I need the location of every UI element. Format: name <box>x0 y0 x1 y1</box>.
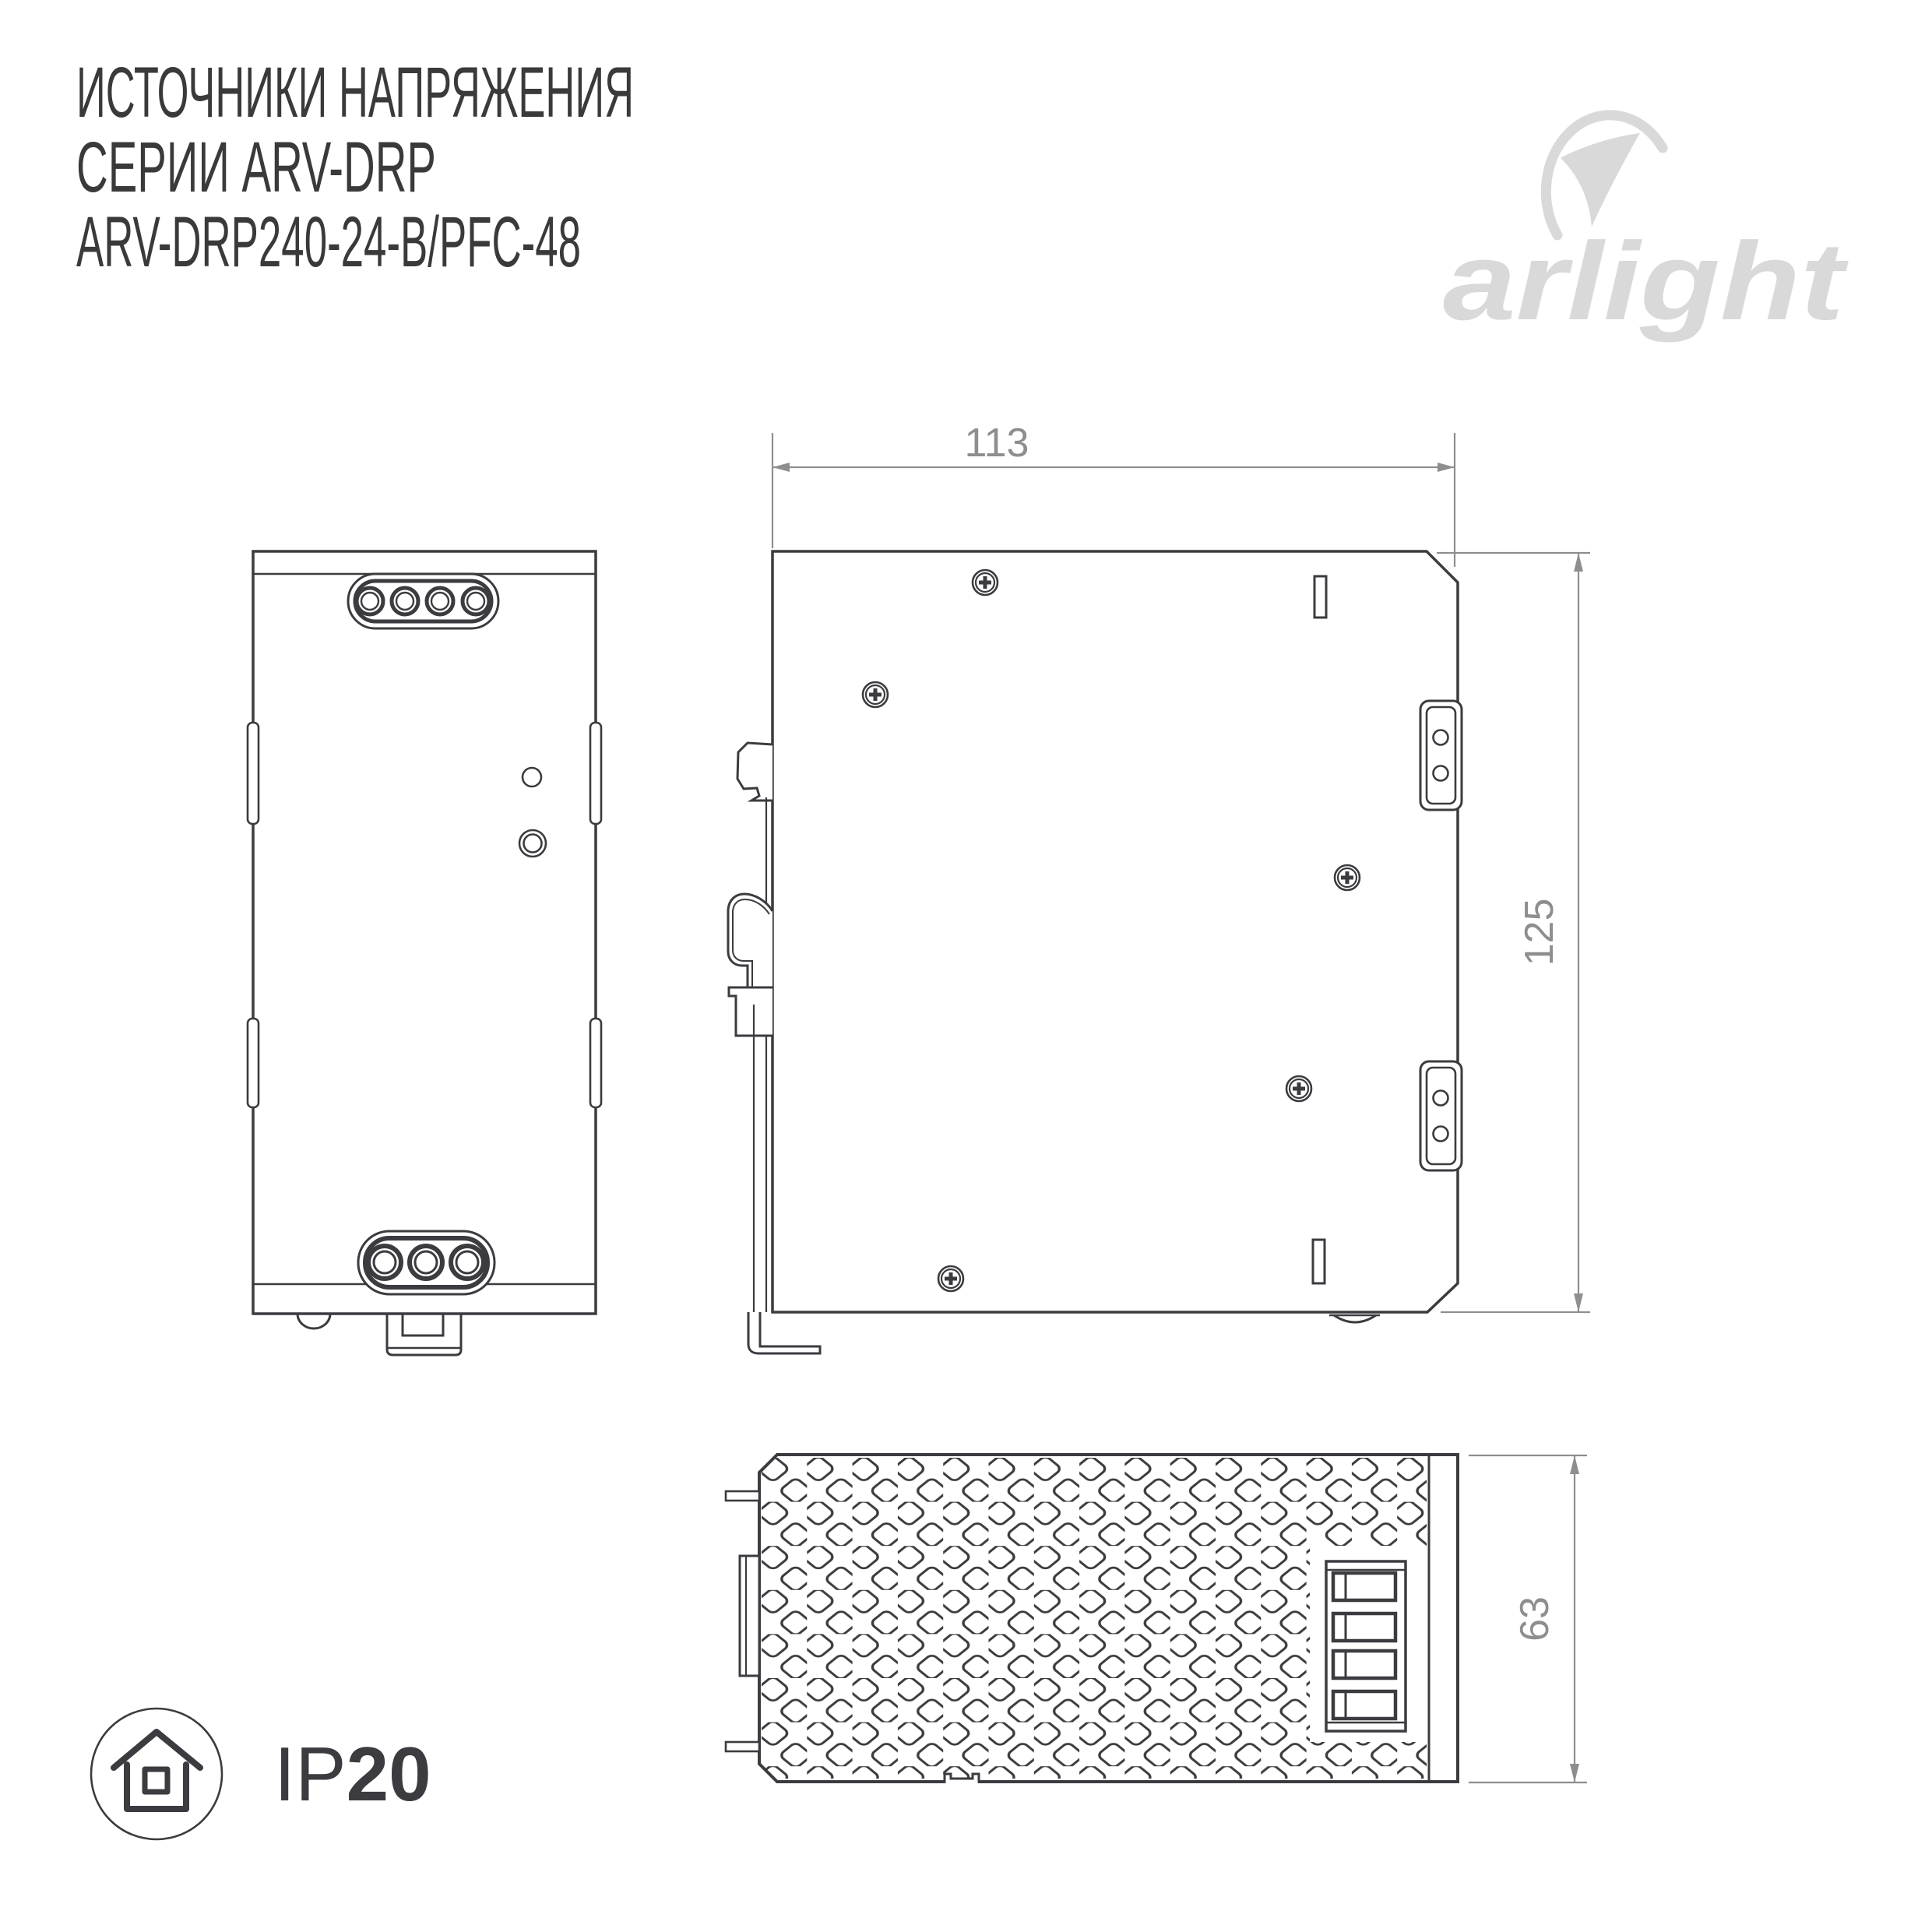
datasheet-page: ИСТОЧНИКИ НАПРЯЖЕНИЯ СЕРИИ ARV-DRP ARV-D… <box>0 0 1932 1932</box>
ip-rating-value: 20 <box>347 1731 431 1817</box>
technical-drawing-canvas: ИСТОЧНИКИ НАПРЯЖЕНИЯ СЕРИИ ARV-DRP ARV-D… <box>0 0 1932 1932</box>
depth-dimension: 63 <box>1469 1455 1587 1782</box>
height-dimension: 125 <box>1437 553 1590 1312</box>
front-connector-4pin <box>348 574 498 628</box>
ip-rating-label: IP20 <box>274 1731 431 1817</box>
logo-wordmark: arlight <box>1443 220 1849 343</box>
arrow-right-icon <box>1438 463 1455 472</box>
front-connector-3pin <box>358 1231 494 1294</box>
side-view-drawing <box>728 551 1462 1353</box>
width-dimension-label: 113 <box>965 421 1029 466</box>
arrow-up-icon <box>1574 553 1583 572</box>
height-dimension-label: 125 <box>1517 899 1562 966</box>
arrow-down-icon <box>1574 1293 1583 1312</box>
front-bottom-bump <box>297 1314 330 1328</box>
badge-circle <box>91 1709 222 1839</box>
arrow-down-icon <box>1570 1764 1579 1782</box>
bottom-din-clip-edge <box>740 1556 759 1676</box>
phillips-screw-icon <box>973 570 998 595</box>
front-edge-notch <box>248 1019 259 1107</box>
ip-rating-badge: IP20 <box>91 1709 431 1839</box>
arrow-left-icon <box>772 463 790 472</box>
title-line-3: ARV-DRP240-24-B/PFC-48 <box>76 202 581 282</box>
front-body-outline <box>253 551 596 1314</box>
side-terminal-block <box>1420 701 1462 810</box>
page-title: ИСТОЧНИКИ НАПРЯЖЕНИЯ СЕРИИ ARV-DRP ARV-D… <box>76 53 634 282</box>
front-edge-notch <box>590 723 601 824</box>
phillips-screw-icon <box>863 682 888 707</box>
phillips-screw-icon <box>938 1266 963 1291</box>
bottom-view-drawing <box>726 1455 1458 1783</box>
title-line-2: СЕРИИ ARV-DRP <box>76 128 436 207</box>
front-din-clip-tab <box>387 1314 461 1355</box>
phillips-screw-icon <box>1335 865 1360 890</box>
title-line-1: ИСТОЧНИКИ НАПРЯЖЕНИЯ <box>76 53 634 132</box>
side-body-outline <box>772 551 1458 1312</box>
bottom-left-tab <box>726 1742 759 1751</box>
arrow-up-icon <box>1570 1455 1579 1474</box>
side-bottom-latch <box>1329 1315 1380 1322</box>
logo-swoosh-arrow-icon <box>1561 133 1640 227</box>
front-edge-notch <box>590 1019 601 1107</box>
width-dimension: 113 <box>772 421 1455 567</box>
front-view-drawing <box>248 551 601 1355</box>
bottom-left-tab <box>726 1491 759 1501</box>
bottom-terminal-block <box>1326 1561 1406 1731</box>
house-icon <box>114 1732 200 1809</box>
front-edge-notch <box>248 723 259 824</box>
ip-rating-prefix: IP <box>274 1731 347 1817</box>
depth-dimension-label: 63 <box>1512 1596 1557 1642</box>
arlight-logo: arlight <box>1443 115 1849 343</box>
phillips-screw-icon <box>1286 1076 1311 1101</box>
side-terminal-block <box>1420 1061 1462 1170</box>
